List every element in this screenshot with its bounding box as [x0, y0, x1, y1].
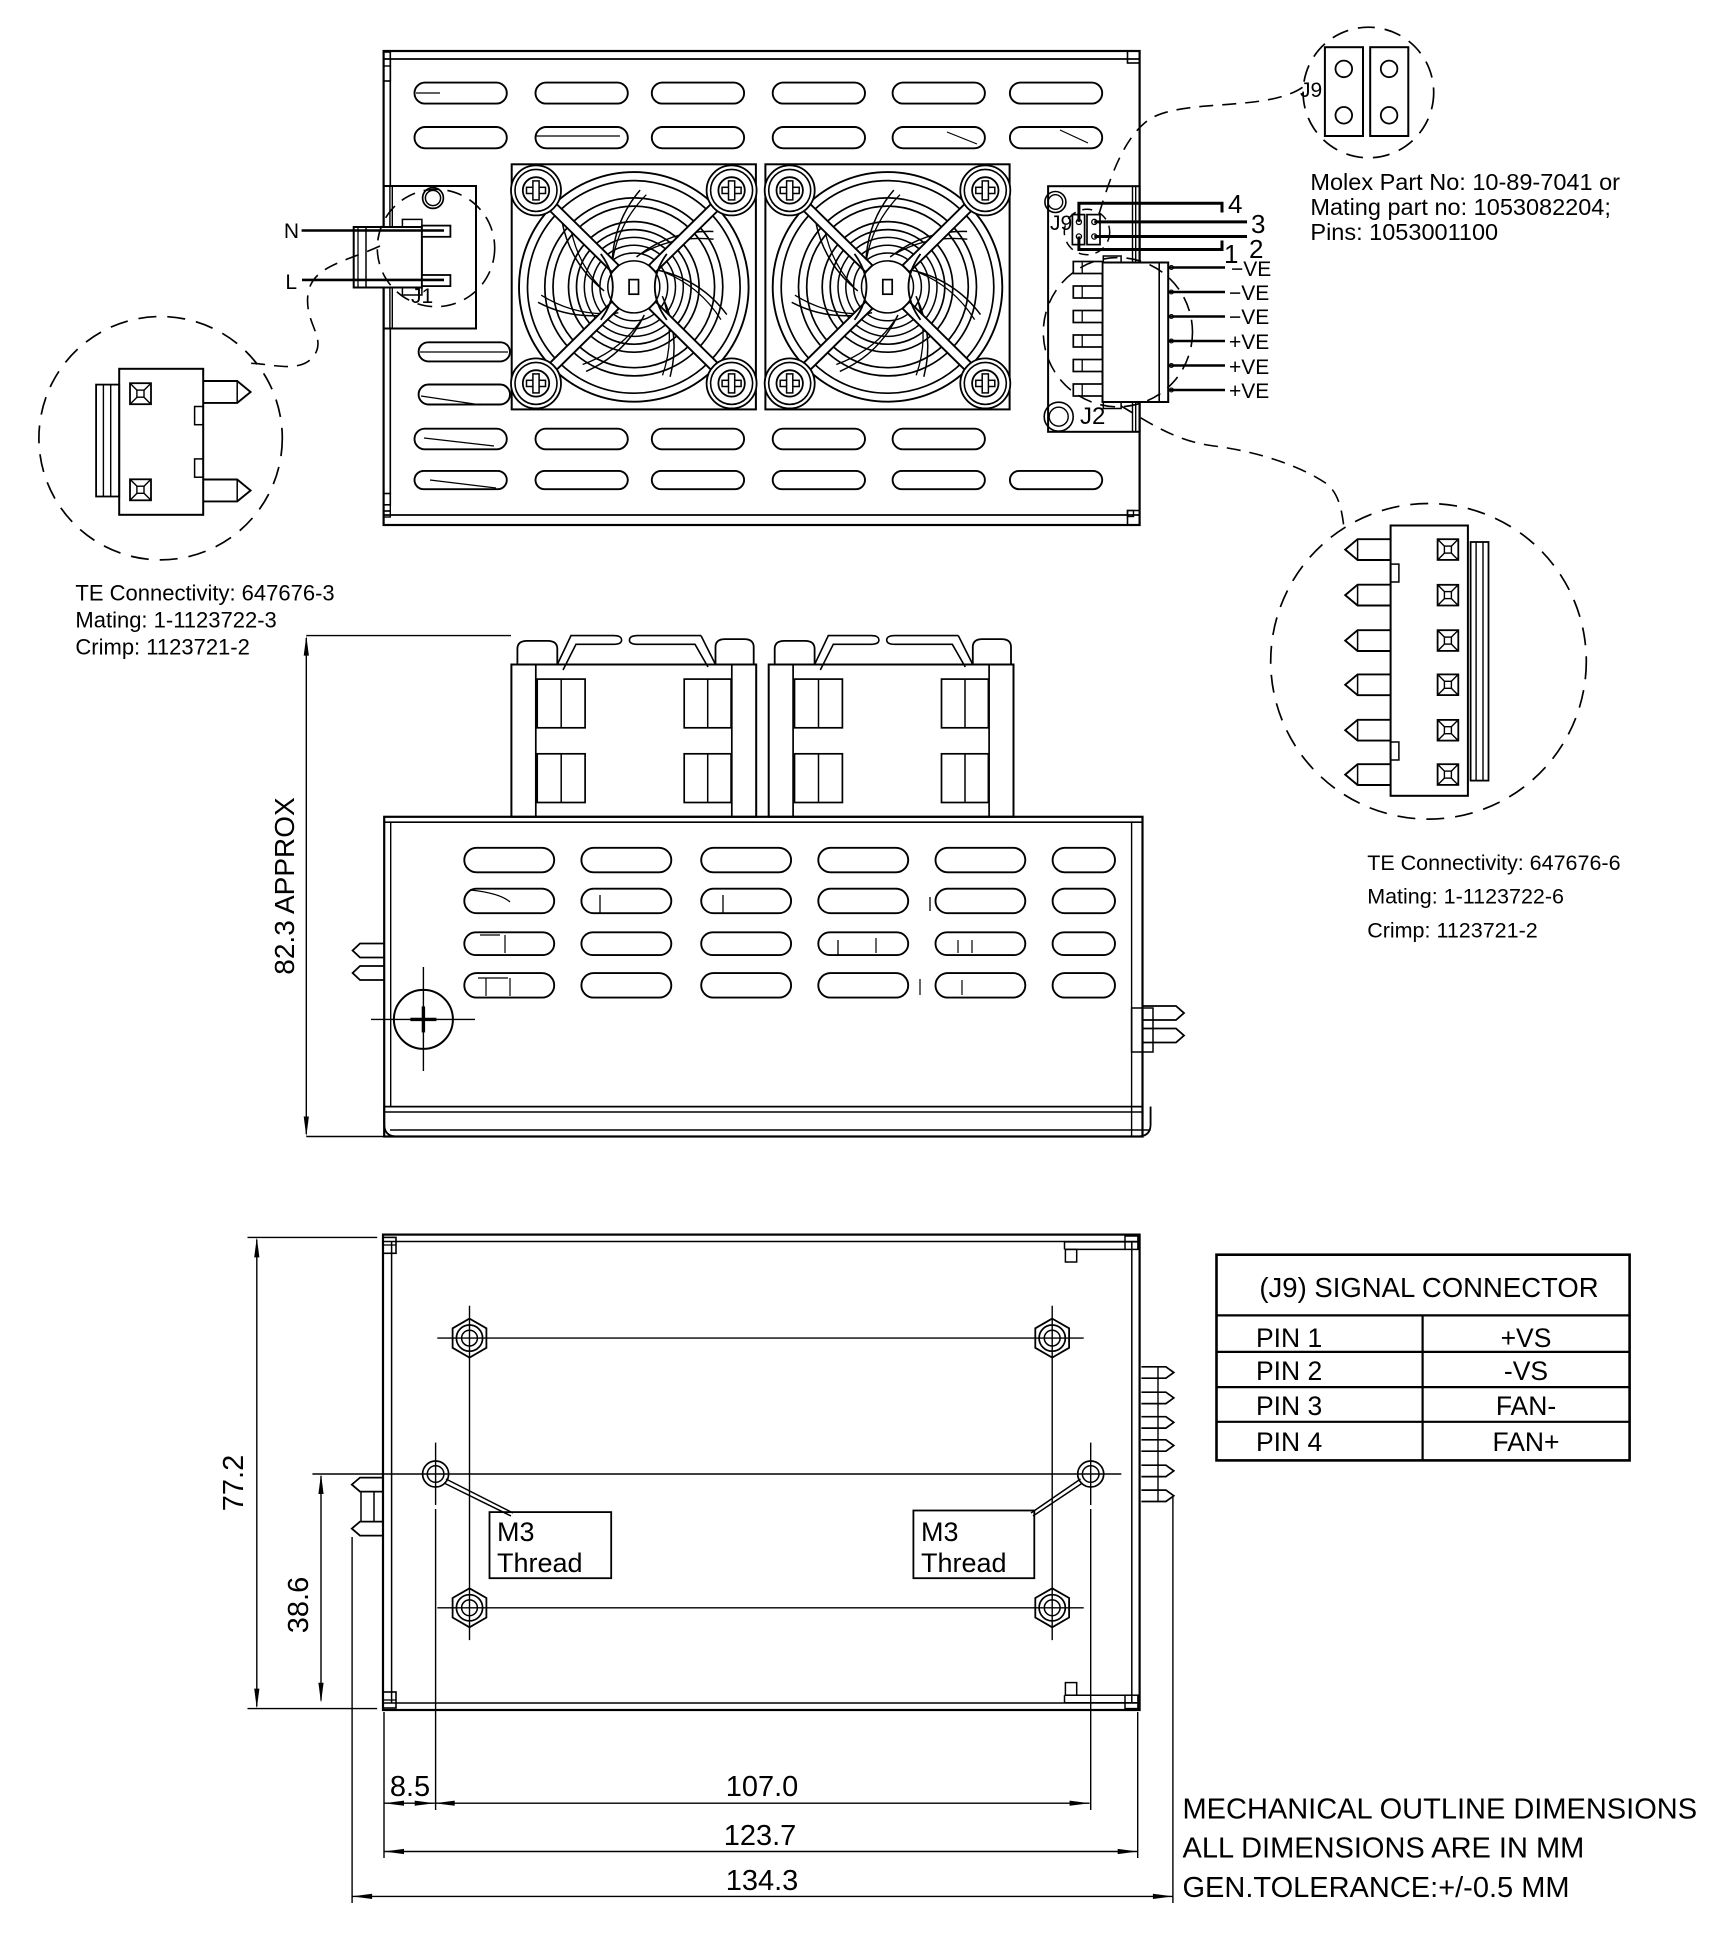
svg-text:MECHANICAL OUTLINE DIMENSIONS: MECHANICAL OUTLINE DIMENSIONS — [1183, 1794, 1698, 1826]
svg-text:+VE: +VE — [1229, 331, 1269, 354]
svg-text:Crimp: 1123721-2: Crimp: 1123721-2 — [75, 635, 249, 660]
svg-text:123.7: 123.7 — [724, 1820, 797, 1852]
svg-text:ALL DIMENSIONS ARE IN MM: ALL DIMENSIONS ARE IN MM — [1183, 1833, 1585, 1865]
svg-text:+VE: +VE — [1229, 356, 1269, 379]
svg-text:−VE: −VE — [1229, 306, 1269, 329]
svg-text:(J9) SIGNAL CONNECTOR: (J9) SIGNAL CONNECTOR — [1259, 1272, 1598, 1303]
svg-text:134.3: 134.3 — [726, 1865, 799, 1897]
svg-text:TE Connectivity: 647676-3: TE Connectivity: 647676-3 — [75, 581, 334, 606]
svg-text:82.3 APPROX: 82.3 APPROX — [269, 797, 300, 975]
svg-text:PIN 3: PIN 3 — [1256, 1391, 1322, 1421]
svg-text:-VS: -VS — [1504, 1356, 1548, 1386]
svg-text:107.0: 107.0 — [726, 1771, 799, 1803]
svg-text:J9: J9 — [1300, 79, 1322, 102]
svg-text:TE Connectivity: 647676-6: TE Connectivity: 647676-6 — [1367, 851, 1620, 875]
svg-text:−VE: −VE — [1231, 258, 1271, 281]
svg-text:Thread: Thread — [921, 1548, 1007, 1578]
svg-text:8.5: 8.5 — [390, 1771, 430, 1803]
svg-text:+VS: +VS — [1501, 1323, 1552, 1353]
svg-text:GEN.TOLERANCE:+/-0.5 MM: GEN.TOLERANCE:+/-0.5 MM — [1183, 1872, 1570, 1904]
svg-text:Pins: 1053001100: Pins: 1053001100 — [1310, 219, 1498, 245]
svg-text:FAN+: FAN+ — [1492, 1427, 1559, 1457]
svg-text:J9: J9 — [1050, 212, 1072, 235]
svg-text:38.6: 38.6 — [283, 1577, 315, 1633]
svg-text:Molex Part No: 10-89-7041 or: Molex Part No: 10-89-7041 or — [1310, 169, 1620, 195]
svg-text:FAN-: FAN- — [1496, 1391, 1556, 1421]
svg-text:N: N — [284, 220, 299, 243]
svg-text:−VE: −VE — [1229, 282, 1269, 305]
svg-text:Mating part no: 1053082204;: Mating part no: 1053082204; — [1310, 194, 1611, 220]
svg-text:M3: M3 — [497, 1517, 535, 1547]
svg-text:L: L — [285, 271, 297, 294]
svg-text:+VE: +VE — [1229, 380, 1269, 403]
svg-text:Mating: 1-1123722-6: Mating: 1-1123722-6 — [1367, 885, 1564, 909]
svg-text:77.2: 77.2 — [218, 1455, 250, 1511]
svg-text:PIN 2: PIN 2 — [1256, 1356, 1322, 1386]
svg-text:4: 4 — [1228, 189, 1242, 219]
svg-text:PIN 1: PIN 1 — [1256, 1323, 1322, 1353]
svg-text:PIN 4: PIN 4 — [1256, 1427, 1322, 1457]
svg-text:M3: M3 — [921, 1517, 959, 1547]
svg-text:Thread: Thread — [497, 1548, 583, 1578]
svg-text:Mating: 1-1123722-3: Mating: 1-1123722-3 — [75, 608, 276, 633]
svg-text:J2: J2 — [1080, 403, 1105, 430]
svg-text:Crimp: 1123721-2: Crimp: 1123721-2 — [1367, 919, 1538, 943]
